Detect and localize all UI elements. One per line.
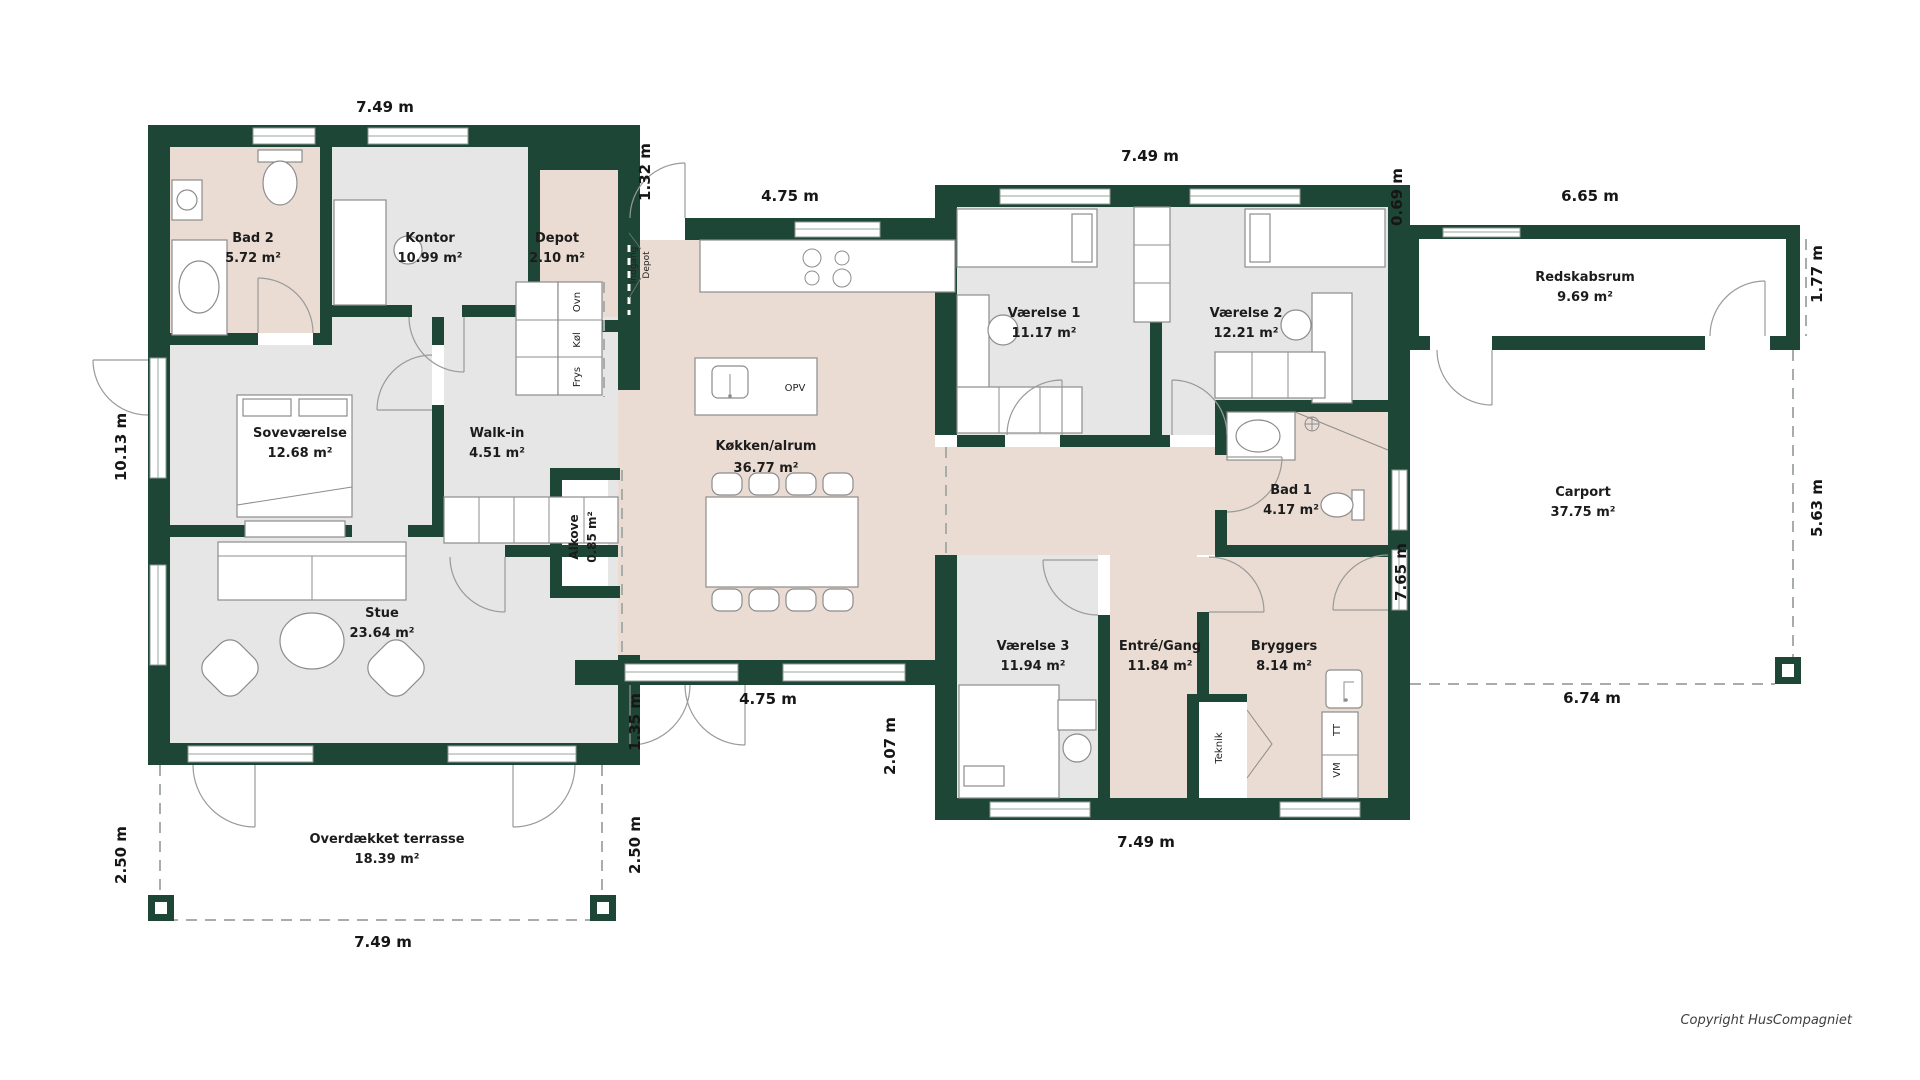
dimension-kitchen-bottom-left: 1.35 m xyxy=(626,693,644,751)
entrance-label-line2: Depot xyxy=(642,251,652,279)
svg-text:Overdækket terrasse: Overdækket terrasse xyxy=(309,832,464,847)
toilet-icon xyxy=(258,150,302,162)
svg-text:Walk-in: Walk-in xyxy=(470,426,525,441)
dimension-terrace-left: 2.50 m xyxy=(112,826,130,884)
svg-text:23.64 m²: 23.64 m² xyxy=(350,626,415,641)
terrace-post xyxy=(590,895,616,921)
fridge-label: Køl xyxy=(572,332,583,347)
svg-text:8.14 m²: 8.14 m² xyxy=(1256,659,1312,674)
svg-text:Køkken/alrum: Køkken/alrum xyxy=(716,439,817,454)
dimension-kitchen-bottom: 4.75 m xyxy=(739,690,797,708)
freezer-label: Frys xyxy=(572,367,583,387)
room-name: Bad 2 xyxy=(232,231,274,246)
svg-text:Værelse 3: Værelse 3 xyxy=(997,639,1070,654)
closet xyxy=(957,387,1082,433)
room-label-carport: Carport 37.75 m² xyxy=(1551,485,1616,520)
room-area: 5.72 m² xyxy=(225,251,281,266)
dimension-terrace-step: 2.07 m xyxy=(881,717,899,775)
sofa xyxy=(218,542,406,600)
svg-text:Bad 1: Bad 1 xyxy=(1270,483,1312,498)
dimension-carport-right: 5.63 m xyxy=(1808,479,1826,537)
kitchen-counter xyxy=(700,240,955,292)
wardrobe-column xyxy=(1134,207,1170,322)
coffee-table xyxy=(280,613,344,669)
dimension-kitchen-top: 4.75 m xyxy=(761,187,819,205)
dimension-house-right: 7.65 m xyxy=(1392,543,1410,601)
floor-plan: Bad 2 5.72 m² Kontor 10.99 m² Depot 2.10… xyxy=(0,0,1920,1080)
terrace-post xyxy=(148,895,174,921)
kitchen-double-door-swing xyxy=(630,685,745,745)
double-bed xyxy=(237,395,352,537)
svg-text:10.99 m²: 10.99 m² xyxy=(398,251,463,266)
floor-redskabsrum xyxy=(1419,239,1786,336)
svg-text:9.69 m²: 9.69 m² xyxy=(1557,290,1613,305)
room-label-terrasse: Overdækket terrasse 18.39 m² xyxy=(309,832,464,867)
washer-label: VM xyxy=(1332,762,1343,777)
closet xyxy=(1215,352,1325,398)
dimension-carport-bottom: 6.74 m xyxy=(1563,689,1621,707)
dimension-annex-right: 1.77 m xyxy=(1808,245,1826,303)
floor-entre-corridor xyxy=(1110,555,1197,798)
svg-text:11.84 m²: 11.84 m² xyxy=(1128,659,1193,674)
svg-text:Værelse 1: Værelse 1 xyxy=(1008,306,1081,321)
dimension-bedrooms-bottom: 7.49 m xyxy=(1117,833,1175,851)
desk xyxy=(1058,700,1096,730)
svg-text:4.17 m²: 4.17 m² xyxy=(1263,503,1319,518)
west-door-swing xyxy=(93,360,148,415)
svg-text:Kontor: Kontor xyxy=(405,231,455,246)
terrace-door-swing xyxy=(513,765,575,827)
svg-text:0.85 m²: 0.85 m² xyxy=(585,511,599,563)
svg-text:4.51 m²: 4.51 m² xyxy=(469,446,525,461)
carport-post xyxy=(1775,657,1801,684)
dryer-label: TT xyxy=(1332,723,1343,737)
svg-text:Depot: Depot xyxy=(535,231,579,246)
sink-icon xyxy=(177,190,197,210)
svg-text:Bryggers: Bryggers xyxy=(1251,639,1318,654)
svg-text:11.17 m²: 11.17 m² xyxy=(1012,326,1077,341)
svg-text:Alkove: Alkove xyxy=(567,514,581,559)
terrace-door-swing xyxy=(193,765,255,827)
svg-text:Carport: Carport xyxy=(1555,485,1611,500)
copyright-text: Copyright HusCompagniet xyxy=(1680,1013,1852,1028)
desk xyxy=(957,295,989,400)
toilet-icon xyxy=(1321,493,1353,517)
dimension-terrace-right: 2.50 m xyxy=(626,816,644,874)
dimension-bedrooms-top: 7.49 m xyxy=(1121,147,1179,165)
dimension-terrace-bottom: 7.49 m xyxy=(354,933,412,951)
chair-icon xyxy=(712,473,742,495)
oven-label: Ovn xyxy=(572,292,583,312)
dimension-top-left: 7.49 m xyxy=(356,98,414,116)
svg-text:18.39 m²: 18.39 m² xyxy=(355,852,420,867)
svg-text:Soveværelse: Soveværelse xyxy=(253,426,347,441)
svg-text:Redskabsrum: Redskabsrum xyxy=(1535,270,1635,285)
dimension-house-left: 10.13 m xyxy=(112,413,130,481)
svg-text:12.21 m²: 12.21 m² xyxy=(1214,326,1279,341)
dishwasher-label: OPV xyxy=(785,383,806,394)
dimension-entry: 1.32 m xyxy=(636,143,654,201)
sink-icon xyxy=(1236,420,1280,452)
dimension-annex-top: 6.65 m xyxy=(1561,187,1619,205)
floor-entre-band xyxy=(935,447,1215,555)
svg-text:Stue: Stue xyxy=(365,606,399,621)
chair-icon xyxy=(1063,734,1091,762)
svg-text:Værelse 2: Værelse 2 xyxy=(1210,306,1283,321)
svg-text:2.10 m²: 2.10 m² xyxy=(529,251,585,266)
teknik-label: Teknik xyxy=(1214,732,1225,764)
entrance-label-line1: Indgang xyxy=(629,247,639,284)
cabinet-row xyxy=(516,282,602,395)
svg-text:12.68 m²: 12.68 m² xyxy=(268,446,333,461)
dimension-annex-offset: 0.69 m xyxy=(1388,168,1406,226)
svg-text:Entré/Gang: Entré/Gang xyxy=(1119,639,1201,654)
shed-door-swing xyxy=(1437,350,1492,405)
svg-text:11.94 m²: 11.94 m² xyxy=(1001,659,1066,674)
floor-plan-drawing: Bad 2 5.72 m² Kontor 10.99 m² Depot 2.10… xyxy=(0,0,1920,1080)
svg-text:36.77 m²: 36.77 m² xyxy=(734,461,799,476)
svg-text:37.75 m²: 37.75 m² xyxy=(1551,505,1616,520)
chair-icon xyxy=(1281,310,1311,340)
